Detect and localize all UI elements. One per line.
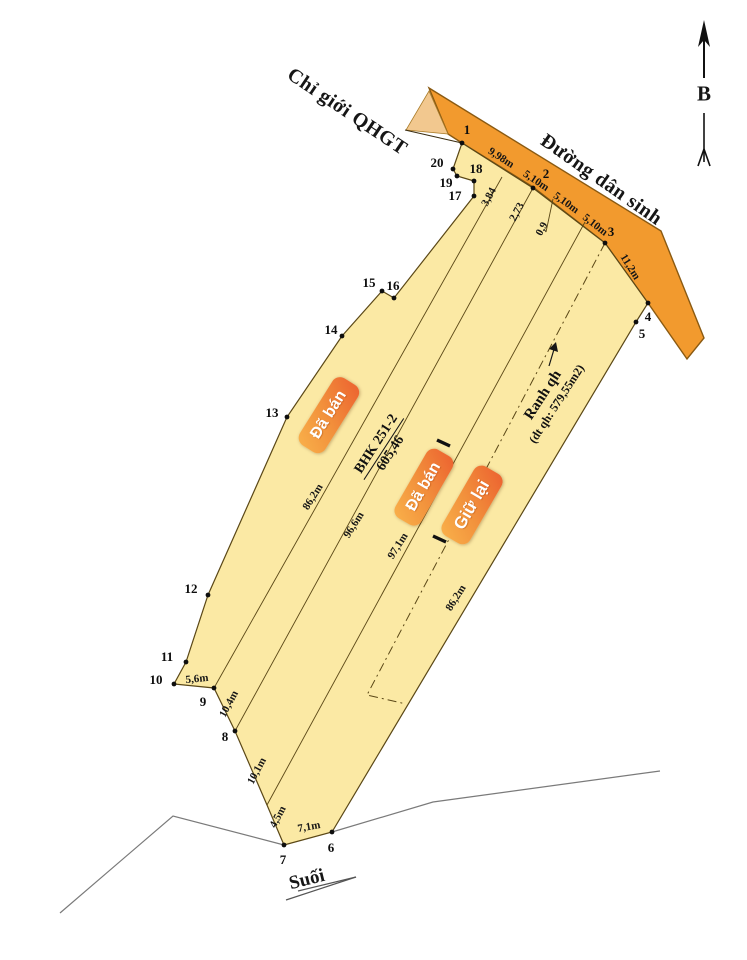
vertex-label-13: 13 bbox=[266, 405, 279, 421]
vertex-label-19: 19 bbox=[440, 175, 453, 191]
vertex-label-11: 11 bbox=[161, 649, 173, 665]
north-label: B bbox=[697, 82, 711, 107]
vertex-label-15: 15 bbox=[363, 275, 376, 291]
vertex-label-12: 12 bbox=[185, 581, 198, 597]
vertex-label-9: 9 bbox=[200, 694, 207, 710]
vertex-label-5: 5 bbox=[639, 326, 646, 342]
vertex-label-7: 7 bbox=[280, 852, 287, 868]
vertex-label-6: 6 bbox=[328, 840, 335, 856]
vertex-label-10: 10 bbox=[150, 672, 163, 688]
stream-line-west bbox=[60, 816, 284, 913]
vertex-label-2: 2 bbox=[543, 166, 550, 182]
vertex-label-16: 16 bbox=[387, 278, 400, 294]
measure-edge-9-10: 5,6m bbox=[185, 672, 209, 686]
vertex-label-3: 3 bbox=[608, 224, 615, 240]
cadastral-map: Chỉ giới QHGT Đường dân sinh B Suối 9,98… bbox=[0, 0, 747, 960]
vertex-label-4: 4 bbox=[645, 309, 652, 325]
vertex-label-1: 1 bbox=[464, 122, 471, 138]
stream-line-east bbox=[332, 771, 660, 832]
vertex-label-8: 8 bbox=[222, 729, 229, 745]
vertex-label-18: 18 bbox=[470, 161, 483, 177]
vertex-label-14: 14 bbox=[325, 322, 338, 338]
vertex-label-20: 20 bbox=[431, 155, 444, 171]
